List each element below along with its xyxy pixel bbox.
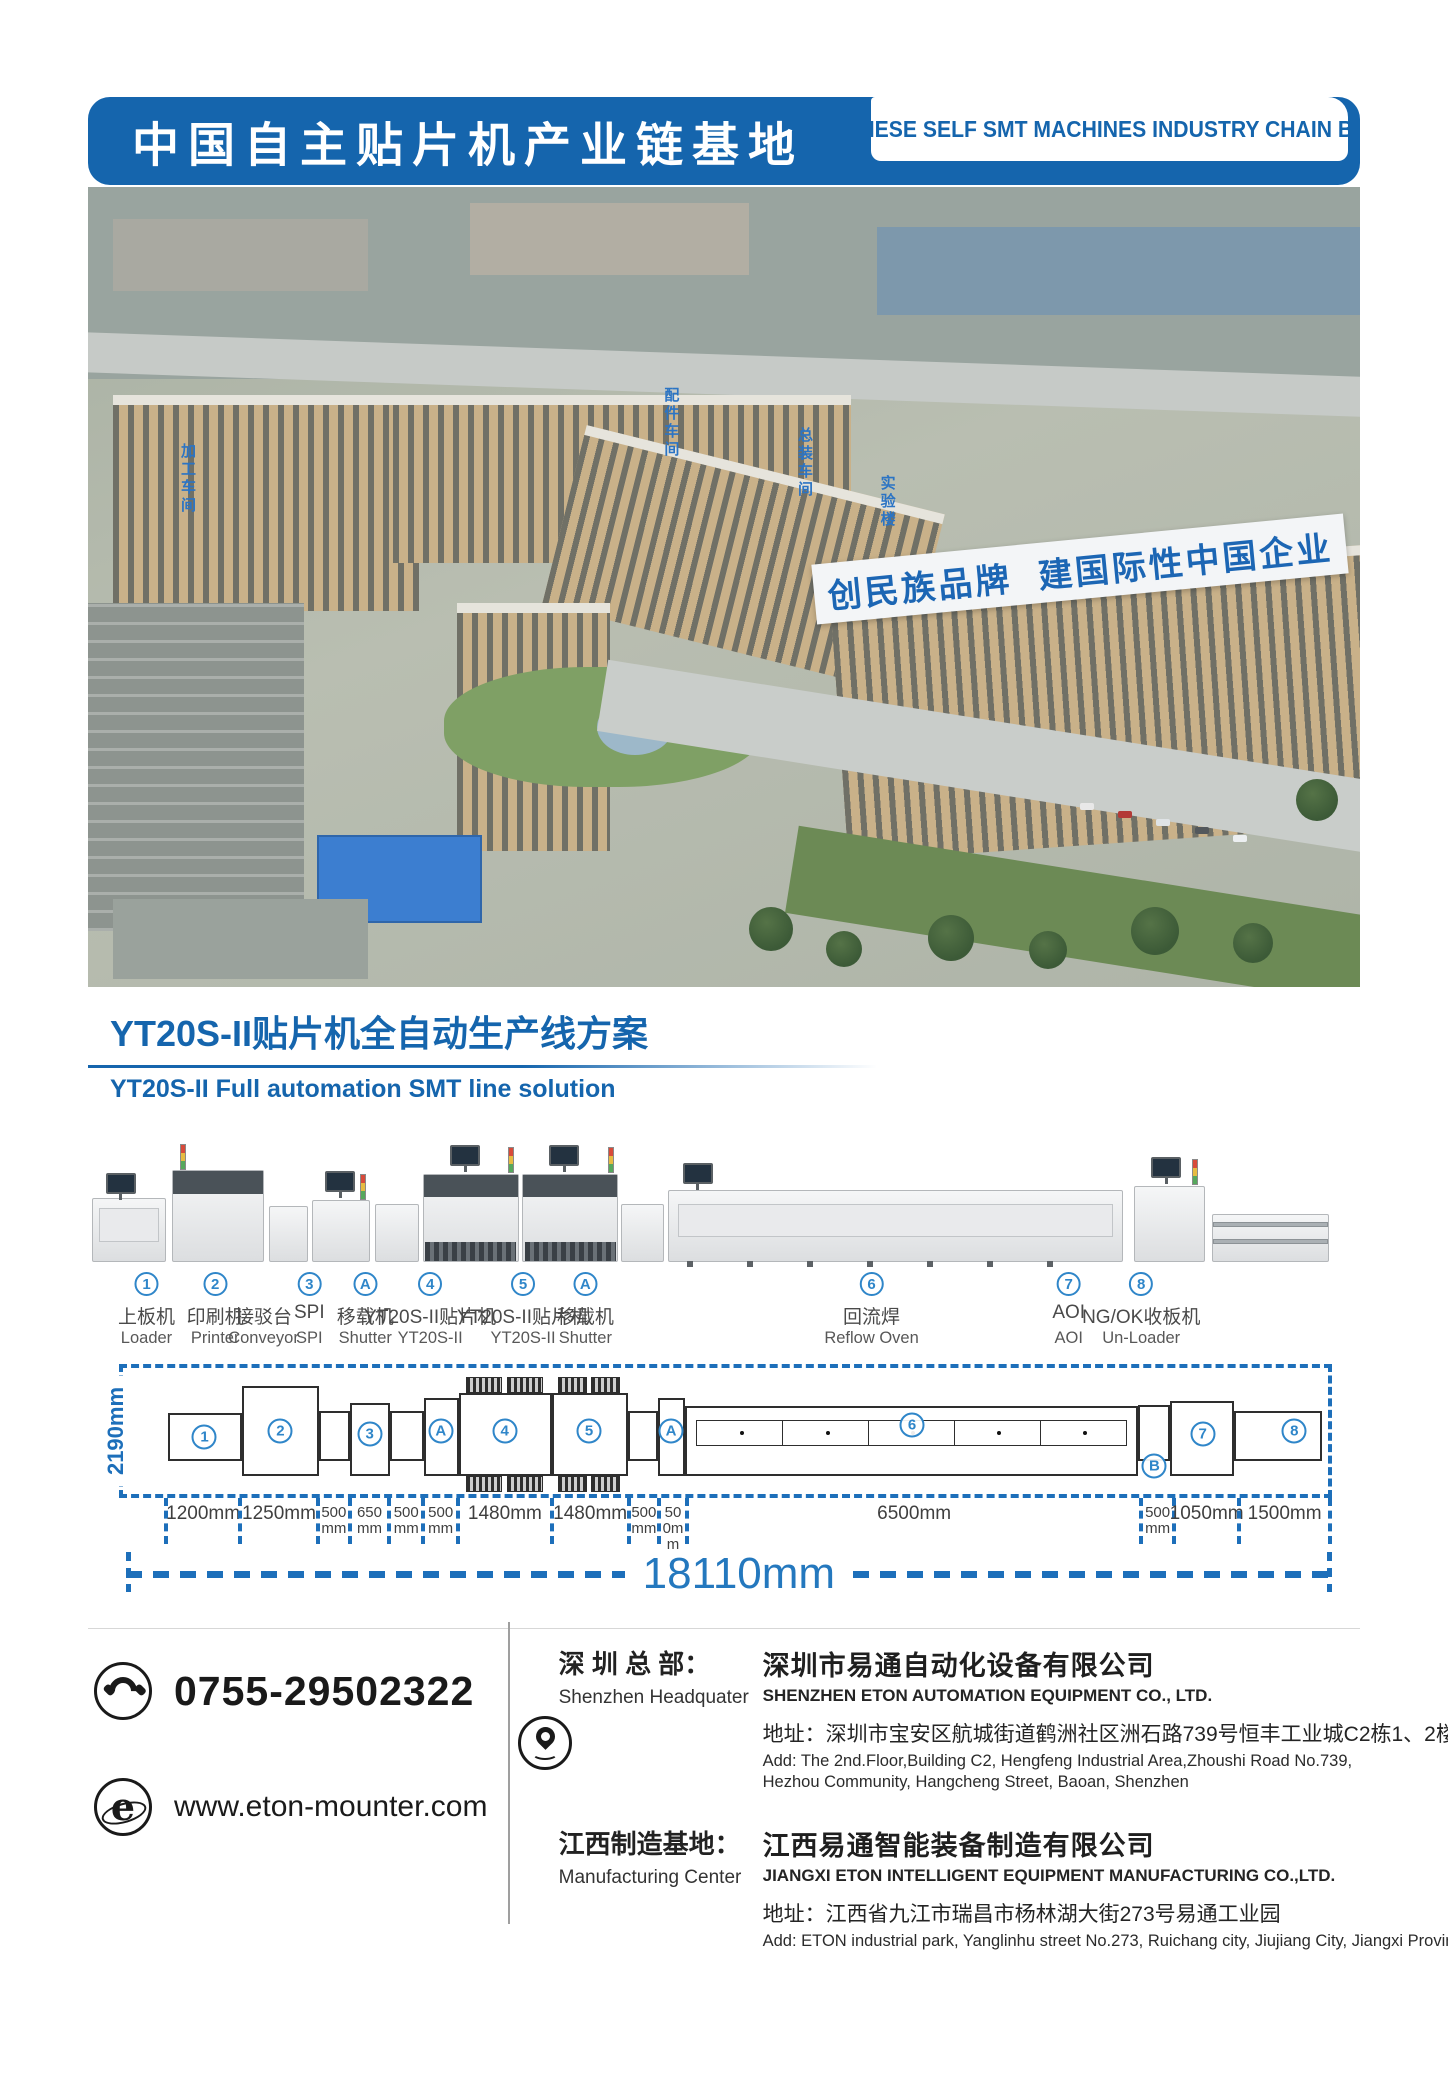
photo-warehouse-roof — [877, 227, 1360, 315]
website-row: e www.eton-mounter.com — [94, 1778, 508, 1836]
dim-segment: 500mm — [657, 1498, 685, 1544]
photo-sign-vertical: 总装车间 — [794, 427, 815, 499]
header-banner: 中国自主贴片机产业链基地 CHINESE SELF SMT MACHINES I… — [88, 97, 1360, 185]
page-title-en-box: CHINESE SELF SMT MACHINES INDUSTRY CHAIN… — [871, 97, 1348, 161]
signal-tower-icon — [180, 1144, 186, 1170]
factory-aerial-photo: 加工车间 配件车间 总装车间 实验楼 创民族品牌 建国际性中国企业 — [88, 187, 1360, 987]
mfg-label-zh: 江西制造基地： — [559, 1824, 749, 1861]
topview-shutter-b — [1138, 1405, 1171, 1462]
photo-car — [1233, 835, 1247, 842]
section-title-zh: YT20S-II贴片机全自动生产线方案 — [88, 1005, 1360, 1057]
machine-name-en: Reflow Oven — [824, 1329, 918, 1353]
callout-circle: 2 — [268, 1419, 293, 1444]
callout-circle: A — [573, 1272, 597, 1296]
hq-labels: 深 圳 总 部： Shenzhen Headquater — [559, 1644, 749, 1794]
machine-name-zh: 移载机 — [557, 1302, 614, 1329]
callout-circle: 8 — [1129, 1272, 1153, 1296]
total-length-value: 18110mm — [625, 1549, 853, 1599]
machine-name-zh: SPI — [294, 1302, 325, 1329]
feeder-bank — [507, 1476, 543, 1492]
dim-segment: 650mm — [348, 1498, 388, 1544]
signal-tower-icon — [608, 1147, 614, 1173]
hq-details: 深圳市易通自动化设备有限公司 SHENZHEN ETON AUTOMATION … — [763, 1644, 1448, 1794]
topview-conveyor — [319, 1411, 350, 1461]
dim-segment: 500mm — [1139, 1498, 1172, 1544]
photo-car — [1080, 803, 1094, 810]
website-icon: e — [94, 1778, 152, 1836]
pin-glyph — [532, 1723, 559, 1750]
hq-label-en: Shenzhen Headquater — [559, 1687, 749, 1709]
oven-body-panel — [678, 1204, 1113, 1238]
hq-address-zh: 地址：深圳市宝安区航城街道鹤洲社区洲石路739号恒丰工业城C2栋1、2楼 — [763, 1718, 1448, 1748]
machine-printer — [172, 1170, 264, 1262]
segment-dimensions-row: 1200mm 1250mm 500mm 650mm 500mm 500mm 14… — [164, 1498, 1332, 1544]
e-globe-glyph: e — [111, 1788, 135, 1826]
machine-unloader — [1212, 1214, 1329, 1262]
machine-loader — [92, 1198, 166, 1262]
photo-car — [1118, 811, 1132, 818]
photo-green-verge — [785, 826, 1360, 987]
page-title-zh: 中国自主贴片机产业链基地 — [132, 107, 804, 176]
line-width-dimension: 2190mm — [102, 1376, 130, 1486]
total-dash-right — [853, 1571, 1332, 1578]
hq-company-zh: 深圳市易通自动化设备有限公司 — [763, 1644, 1448, 1683]
callout-circle: 3 — [297, 1272, 321, 1296]
machine-shutter — [375, 1204, 418, 1262]
machine-name-en: AOI — [1052, 1329, 1085, 1353]
feeder-bank — [558, 1476, 587, 1492]
photo-tree — [749, 907, 793, 951]
dimension-end-tick — [1327, 1552, 1332, 1592]
hq-company-en: SHENZHEN ETON AUTOMATION EQUIPMENT CO., … — [763, 1686, 1448, 1706]
conveyor-rail — [1213, 1222, 1328, 1227]
total-dash-left — [126, 1571, 625, 1578]
monitor-icon — [549, 1145, 579, 1166]
machine-name-zh: 上板机 — [118, 1302, 175, 1329]
callout-circle: 4 — [418, 1272, 442, 1296]
feeder-bank — [558, 1377, 587, 1393]
machine-mounter-yt20s — [423, 1174, 520, 1262]
dim-segment: 500mm — [387, 1498, 421, 1544]
machine-name-en: Shutter — [557, 1329, 614, 1353]
feeder-bank — [466, 1476, 502, 1492]
photo-tree — [1233, 923, 1273, 963]
label-col-unloader: 8 NG/OK收板机 Un-Loader — [1082, 1272, 1200, 1353]
machine-name-en: Conveyor — [228, 1329, 299, 1353]
phone-icon — [94, 1662, 152, 1720]
dim-segment: 500mm — [421, 1498, 456, 1544]
mfg-details: 江西易通智能装备制造有限公司 JIANGXI ETON INTELLIGENT … — [763, 1824, 1448, 1952]
dim-segment: 1500mm — [1237, 1498, 1332, 1544]
monitor-icon — [325, 1171, 355, 1192]
callout-circle: 1 — [134, 1272, 158, 1296]
footer-contact-column: 0755-29502322 e www.eton-mounter.com — [88, 1628, 508, 1836]
machine-panel — [99, 1208, 159, 1243]
headquarters-block: 深 圳 总 部： Shenzhen Headquater 深圳市易通自动化设备有… — [559, 1644, 1360, 1794]
manufacturing-block: 江西制造基地： Manufacturing Center 江西易通智能装备制造有… — [559, 1824, 1360, 1952]
machine-mounter-yt20s — [522, 1174, 619, 1262]
machine-name-zh: AOI — [1052, 1302, 1085, 1329]
footer-address-column: 深 圳 总 部： Shenzhen Headquater 深圳市易通自动化设备有… — [559, 1628, 1360, 1952]
dim-segment: 1050mm — [1172, 1498, 1237, 1544]
dim-segment: 1200mm — [164, 1498, 238, 1544]
callout-circle: 8 — [1282, 1419, 1307, 1444]
callout-circle: A — [659, 1419, 684, 1444]
photo-tree — [1131, 907, 1179, 955]
photo-building-far-left — [113, 219, 367, 291]
machine-conveyor — [269, 1206, 308, 1262]
mfg-label-en: Manufacturing Center — [559, 1867, 749, 1889]
feeder-bank — [591, 1476, 620, 1492]
page-content: 中国自主贴片机产业链基地 CHINESE SELF SMT MACHINES I… — [88, 97, 1360, 1928]
callout-circle: 6 — [860, 1272, 884, 1296]
smt-line-photo-strip — [88, 1120, 1360, 1268]
photo-tree — [1029, 931, 1067, 969]
line-top-view-diagram: 2190mm 1 2 3 A 4 5 A — [119, 1364, 1332, 1498]
callout-circle: A — [428, 1419, 453, 1444]
photo-sign-vertical: 配件车间 — [660, 387, 681, 459]
dim-segment: 1250mm — [238, 1498, 316, 1544]
hq-address-en: Add: The 2nd.Floor,Building C2, Hengfeng… — [763, 1751, 1383, 1794]
dim-segment: 500mm — [627, 1498, 657, 1544]
footer: 0755-29502322 e www.eton-mounter.com 深 圳… — [88, 1628, 1360, 1928]
topview-conveyor — [390, 1411, 424, 1461]
callout-circle: 1 — [192, 1425, 217, 1450]
photo-tree — [826, 931, 862, 967]
machine-name-en: Loader — [118, 1329, 175, 1353]
photo-gray-rooftop — [88, 603, 304, 931]
footer-vertical-divider — [508, 1622, 510, 1924]
machine-labels-row: 1 上板机 Loader 2 印刷机 Printer 接驳台 Conveyor … — [88, 1272, 1360, 1354]
dimension-end-tick — [126, 1552, 131, 1592]
dim-segment: 1480mm — [456, 1498, 549, 1544]
dim-segment: 6500mm — [685, 1498, 1139, 1544]
photo-car — [1195, 827, 1209, 834]
monitor-icon — [106, 1173, 136, 1194]
phone-handset-glyph — [102, 1670, 144, 1712]
topview-unloader — [1234, 1411, 1322, 1461]
monitor-icon — [450, 1145, 480, 1166]
feeder-bank — [466, 1377, 502, 1393]
callout-circle: 5 — [577, 1419, 602, 1444]
conveyor-rail — [1213, 1239, 1328, 1244]
machine-name-zh: NG/OK收板机 — [1082, 1302, 1200, 1329]
feeder-bank — [507, 1377, 543, 1393]
monitor-icon — [683, 1163, 713, 1184]
callout-circle: 7 — [1190, 1421, 1215, 1446]
hq-label-zh: 深 圳 总 部： — [559, 1644, 749, 1681]
callout-circle: 2 — [203, 1272, 227, 1296]
mfg-labels: 江西制造基地： Manufacturing Center — [559, 1824, 749, 1952]
signal-tower-icon — [360, 1174, 366, 1200]
pin-base-arc — [532, 1747, 558, 1760]
machine-reflow-oven — [668, 1190, 1123, 1262]
signal-tower-icon — [1192, 1159, 1198, 1185]
photo-car — [1156, 819, 1170, 826]
monitor-icon — [1151, 1157, 1181, 1178]
machine-name-zh: 接驳台 — [228, 1302, 299, 1329]
callout-circle: 7 — [1057, 1272, 1081, 1296]
section-header: YT20S-II贴片机全自动生产线方案 YT20S-II Full automa… — [88, 1005, 1360, 1104]
photo-building-workshop-left — [113, 395, 418, 611]
machine-spi — [312, 1200, 371, 1262]
total-length-row: 18110mm — [88, 1550, 1360, 1598]
label-col-spi: 3 SPI SPI — [294, 1272, 325, 1353]
dim-segment: 500mm — [316, 1498, 348, 1544]
topview-conveyor — [628, 1411, 658, 1461]
section-subtitle-en: YT20S-II Full automation SMT line soluti… — [88, 1075, 1360, 1104]
feeder-bank — [591, 1377, 620, 1393]
label-col-loader: 1 上板机 Loader — [118, 1272, 175, 1353]
machine-shutter — [621, 1204, 664, 1262]
signal-tower-icon — [508, 1147, 514, 1173]
section-divider — [88, 1065, 877, 1068]
mfg-company-en: JIANGXI ETON INTELLIGENT EQUIPMENT MANUF… — [763, 1866, 1448, 1886]
mfg-address-zh: 地址：江西省九江市瑞昌市杨林湖大街273号易通工业园 — [763, 1898, 1448, 1928]
photo-building-far-center — [470, 203, 750, 275]
photo-sign-vertical: 加工车间 — [177, 443, 198, 515]
page-title-en: CHINESE SELF SMT MACHINES INDUSTRY CHAIN… — [871, 116, 1348, 143]
mfg-address-en: Add: ETON industrial park, Yanglinhu str… — [763, 1931, 1448, 1952]
label-col-reflow: 6 回流焊 Reflow Oven — [824, 1272, 918, 1353]
mfg-company-zh: 江西易通智能装备制造有限公司 — [763, 1824, 1448, 1863]
photo-building-bottom-left — [113, 899, 367, 979]
photo-sign-vertical: 实验楼 — [877, 475, 898, 529]
callout-circle: 3 — [357, 1421, 382, 1446]
phone-number: 0755-29502322 — [174, 1668, 474, 1715]
phone-row: 0755-29502322 — [94, 1662, 508, 1720]
machine-aoi — [1134, 1186, 1205, 1262]
label-col-aoi: 7 AOI AOI — [1052, 1272, 1085, 1353]
machine-name-en: Un-Loader — [1082, 1329, 1200, 1353]
callout-circle: B — [1142, 1454, 1167, 1479]
callout-circle: 6 — [900, 1412, 925, 1437]
machine-legs — [687, 1261, 1104, 1267]
label-col-conveyor: 接驳台 Conveyor — [228, 1272, 299, 1353]
machine-name-zh: 回流焊 — [824, 1302, 918, 1329]
callout-circle: 4 — [492, 1419, 517, 1444]
label-col-shutter-2: A 移载机 Shutter — [557, 1272, 614, 1353]
dim-segment: 1480mm — [550, 1498, 627, 1544]
website-url: www.eton-mounter.com — [174, 1790, 487, 1824]
photo-tree — [928, 915, 974, 961]
callout-circle: 5 — [511, 1272, 535, 1296]
machine-name-en: SPI — [294, 1329, 325, 1353]
